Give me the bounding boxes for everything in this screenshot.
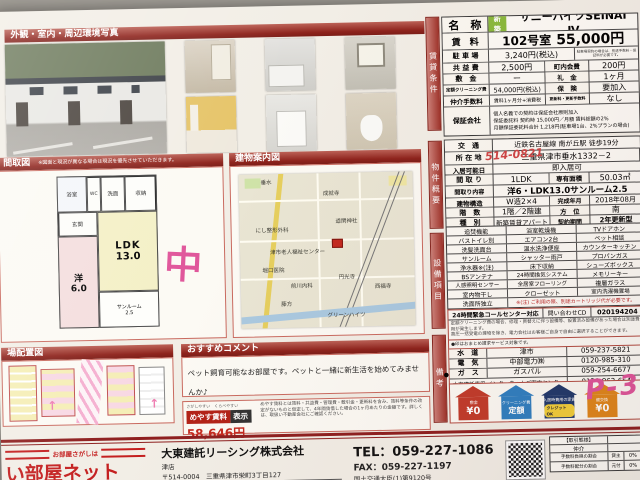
deposit-zero-badge-icon: 敷金¥0 <box>455 386 492 421</box>
plan-washroom: 洗面 <box>100 175 125 211</box>
photo-toilet <box>346 93 397 150</box>
plan-wc-label: WC <box>90 191 98 196</box>
plan-entrance-label: 玄関 <box>72 220 83 228</box>
strip-overview-label: 物件概要 <box>430 163 442 207</box>
direction: 南 <box>590 204 640 214</box>
plan-sunroom-size: 2.5 <box>125 310 133 316</box>
strip-equipment: 設備項目 <box>430 233 446 329</box>
gas-provider: ガスパル <box>488 367 568 378</box>
plan-storage: 収納 <box>124 175 157 212</box>
renewal-label: 更新料・更新手数料 <box>546 93 590 104</box>
plan-western-label: 洋 <box>74 271 83 284</box>
parking-note: 駐車場契約の場合は、別途手数料・保証料が必要です。 <box>575 46 638 59</box>
photo-toilet-bowl <box>360 115 383 141</box>
photo-exterior-windows <box>30 84 140 94</box>
renewal-fee: なし <box>590 92 639 103</box>
map-label-clinic1: にし整形外科 <box>256 226 289 235</box>
badge-top-text: 入居時費用の家賃 <box>543 397 576 403</box>
equipment-item: 追焚機能 <box>447 226 507 235</box>
equipment-item: 洗面所独立 <box>448 298 508 308</box>
house-roof-icon <box>541 384 577 396</box>
plan-bath-label: 浴室 <box>66 190 77 198</box>
fee-burden-owner-value: 0% <box>624 451 640 459</box>
deposit: ー <box>489 72 545 83</box>
photo-washroom <box>266 94 317 151</box>
key-money: 1ヶ月 <box>589 70 638 81</box>
photo-bathroom-mirror <box>190 105 199 131</box>
deal-expiry-value: 2018/10/02 <box>608 442 640 451</box>
room-number: 102号室 <box>502 31 551 49</box>
equipment-item: サンルーム <box>447 253 507 262</box>
floor-area: 50.03㎡ <box>589 171 640 182</box>
layout-detail-label: 間取り内容 <box>446 186 494 198</box>
insurance: 要加入 <box>590 81 639 92</box>
plan-wc: WC <box>86 176 101 212</box>
qr-code <box>506 441 545 480</box>
town-fee: 200円 <box>589 59 638 70</box>
deal-type-header: 【取引態様】 <box>550 436 608 444</box>
map-label-fujikata: 藤方 <box>281 300 292 308</box>
equipment-item: シャッター雨戸 <box>507 252 577 261</box>
site-units-cluster <box>106 365 135 416</box>
map-park-patch <box>245 178 261 188</box>
plan-bath: 浴室 <box>56 176 87 213</box>
fee-split-listing-label: 元付 <box>609 461 625 470</box>
equipment-item: エアコン2台 <box>507 234 577 243</box>
new-construction-badge: 新築 <box>488 13 506 31</box>
floor: 1階／2階建 <box>494 206 550 216</box>
electric-provider: 中部電力㈱ <box>487 357 567 368</box>
deal-type-value: 仲介 <box>550 444 608 452</box>
floor-label: 階 数 <box>446 208 494 218</box>
floorplan-title: 間取図 <box>3 157 30 171</box>
photo-living-window <box>211 44 232 80</box>
guarantor-line3: 月額保証委託料合計 1,218円(駐車場1台、2%プランの場合) <box>493 121 629 131</box>
logo-main-text: い部屋ネット <box>5 457 146 480</box>
plan-sunroom: サンルーム 2.5 <box>99 291 160 328</box>
photo-exterior-roofline <box>5 75 165 84</box>
photo-exterior-door <box>68 101 80 125</box>
layout-type: 1LDK <box>494 173 550 184</box>
site-layout-box: ↑ ↑ <box>1 357 174 427</box>
equipment-item: 全居室フローリング <box>508 279 578 288</box>
meyasu-badge: めやす賃料 <box>186 410 230 424</box>
area-label: 専有面積 <box>550 173 590 184</box>
water-provider: 津市 <box>487 347 567 358</box>
deal-expiry-header: 【取引条件有効期限】 <box>608 434 640 443</box>
strip-remarks: 備考 <box>432 335 448 423</box>
map-label-welfare-center: 津市老人福祉センター <box>270 247 325 256</box>
equipment-item: 24時間換気システム <box>508 270 578 279</box>
map-label-shrine: 道閑神社 <box>335 216 357 224</box>
brokerage-fee: 賃料1ヶ月分+消費税 <box>490 94 546 105</box>
completion-date: 2018年08月 <box>590 194 640 204</box>
inquiry-cd-number: 020194204 <box>591 306 640 316</box>
strip-equipment-label: 設備項目 <box>432 259 444 303</box>
equipment-item: 室内洗濯機置場 <box>578 286 640 295</box>
equipment-item: 洗髪洗面台 <box>447 244 507 253</box>
map-title: 建物案内図 <box>235 152 280 166</box>
structure: W造2×4 <box>494 196 550 206</box>
map-canvas: 垂水 成就寺 道閑神社 にし整形外科 津市老人福祉センター 堀口医院 前川内科 … <box>238 171 415 329</box>
rent-amount: 55,000円 <box>556 29 624 48</box>
map-label-temple2: 西福寺 <box>375 282 392 290</box>
site-road-hatch <box>76 359 103 425</box>
map-label-temple1: 円光寺 <box>339 272 356 280</box>
map-label-clinic2: 堀口医院 <box>262 266 284 274</box>
equipment-item: プロパンガス <box>577 250 640 259</box>
equipment-item: カウンターキッチン <box>577 241 640 250</box>
flyer-paper: 外観・室内・周辺環境写真 賃貸条件 物件概要 設備項目 備考 名 称 新築 <box>0 0 640 480</box>
fee-split-listing-value: 0% <box>625 460 640 469</box>
direction-label: 方 位 <box>550 206 590 216</box>
meyasu-box: さがしやすい くらべやすい めやす賃料 表示 58,646円 めやす賃料とは賃料… <box>182 396 431 435</box>
logo-stripe-icon <box>101 447 145 457</box>
electric-label: 電 気 <box>449 359 487 369</box>
comment-text: ペット飼育可能なお部屋です。ペットと一緒に新生活を始めてみませんか♪ <box>188 364 420 397</box>
photo-exterior-door <box>120 100 132 124</box>
deposit-label: 敷 金 <box>443 74 489 85</box>
equipment-item: 浄水器※(注) <box>447 262 507 271</box>
meyasu-view-badge: 表示 <box>230 410 251 423</box>
equipment-item: クローゼット <box>508 288 578 297</box>
strip-property-overview: 物件概要 <box>428 141 444 229</box>
structure-label: 建物構造 <box>446 198 494 208</box>
credit-ok-badge-icon: 入居時費用の家賃クレジットOK <box>541 384 578 419</box>
cleaning-label: 定額クリーニング費 <box>444 85 490 96</box>
equipment-item: バストイレ別 <box>447 235 507 244</box>
water-tel: 059-237-5821 <box>567 345 640 356</box>
fee-burden-owner-label: 貸主 <box>608 452 624 460</box>
company-block: 大東建託リーシング株式会社 津店 〒514-0004 三重県津市栄町3丁目127… <box>161 442 342 480</box>
photo-living-room <box>185 40 236 93</box>
badge-bottom-text: ¥0 <box>595 404 609 414</box>
badge-bottom-text: 定額 <box>508 407 524 415</box>
meyasu-tag2: くらべやすい <box>214 403 238 410</box>
plan-western-room: 洋 6.0 <box>58 236 100 329</box>
plan-ldk-label: LDK <box>115 240 141 252</box>
gas-label: ガ ス <box>450 369 488 379</box>
site-layout-title: 場配置図 <box>7 347 43 361</box>
logo-stripe-icon <box>5 449 49 459</box>
movein-label: 入居可能日 <box>445 165 493 175</box>
equipment-item: ペット相談 <box>577 232 640 241</box>
common-fee: 2,500円 <box>489 61 545 72</box>
house-roof-icon <box>498 385 534 397</box>
map-road <box>241 275 415 281</box>
photo-bathroom <box>186 96 237 153</box>
site-units-cluster <box>40 368 75 417</box>
photo-kitchen <box>265 38 316 91</box>
site-units-cluster <box>8 365 37 422</box>
key-money-label: 礼 金 <box>545 72 589 83</box>
floorplan-box: 浴室 WC 洗面 収納 玄関 LDK 13.0 サンルーム 2.5 洋 6.0 … <box>0 166 227 343</box>
cleaning-fee: 54,000円(税込) <box>490 83 546 94</box>
property-overview-table: 交 通 近鉄名古屋線 南が丘駅 徒歩19分 所 在 地 三重県津市垂水1332－… <box>444 135 640 229</box>
handwritten-naka-mark: 中 <box>163 233 204 290</box>
map-box: 垂水 成就寺 道閑神社 にし整形外科 津市老人福祉センター 堀口医院 前川内科 … <box>229 162 425 338</box>
rental-conditions-table: 名 称 新築 サニーハイツSEINAI Ⅳ 賃 料 102号室 55,000円 … <box>441 12 640 136</box>
badge-bottom-text: クレジットOK <box>544 403 574 417</box>
parking-fee: 3,240円(税込) <box>489 48 575 62</box>
town-fee-label: 町内会費 <box>545 61 589 72</box>
map-label-joujuji: 成就寺 <box>323 189 340 197</box>
contact-block: TEL：059-227-1086 FAX：059-227-1197 国土交通大臣… <box>353 438 504 480</box>
inquiry-cd-label: 問い合わせCD <box>543 308 591 318</box>
gas-bundle-mark: ● <box>444 371 449 378</box>
map-road <box>240 237 414 243</box>
map-property-marker <box>332 239 343 248</box>
deal-terms-table: 【取引態様】 【取引条件有効期限】 仲介 2018/10/02 手数料負担の割合… <box>549 433 640 473</box>
rent-label: 賃 料 <box>443 33 489 50</box>
house-roof-icon <box>455 386 491 398</box>
photo-bedroom <box>345 37 396 90</box>
plan-entrance: 玄関 <box>57 212 97 237</box>
meyasu-tag1: さがしやすい <box>186 404 210 411</box>
electric-tel: 0120-985-310 <box>567 355 640 366</box>
fee-split-label: 手数料配分の割合 <box>551 461 609 471</box>
equipment-item: BSアンテナ <box>448 271 508 280</box>
guarantor-label: 保証会社 <box>444 107 491 136</box>
badge-top-text: 敷金 <box>469 400 477 406</box>
equipment-item: 浴室乾燥機 <box>507 225 577 234</box>
photo-exterior-door <box>16 103 28 127</box>
equipment-item: 床下収納 <box>507 261 577 270</box>
meyasu-note: めやす賃料とは賃料・共益費・管理費・敷引金・更新料を含み、賃料等条件の改定がない… <box>257 397 430 433</box>
equipment-table: 追焚機能浴室乾燥機TVドアホン バストイレ別エアコン2台ペット相談 洗髪洗面台温… <box>446 222 640 309</box>
cleaning-flat-badge-icon: クリーニング費定額 <box>498 385 535 420</box>
floorplan-canvas: 浴室 WC 洗面 収納 玄関 LDK 13.0 サンルーム 2.5 洋 6.0 … <box>4 171 219 337</box>
comment-box: ペット飼育可能なお部屋です。ペットと一緒に新生活を始めてみませんか♪ <box>181 352 430 397</box>
completion-label: 完成年月 <box>550 196 590 206</box>
photo-section-title: 外観・室内・周辺環境写真 <box>10 27 118 42</box>
equipment-item: 人感照明センサー <box>448 280 508 289</box>
photo-exterior-parking-line <box>13 142 73 155</box>
photo-exterior <box>5 41 167 156</box>
strip-rental-conditions: 賃貸条件 <box>425 17 441 131</box>
equipment-item: メモリーキー <box>578 268 640 277</box>
tel-number: TEL：059-227-1086 <box>353 438 503 460</box>
photo-bedroom-window <box>357 43 385 68</box>
badge-bottom-text: ¥0 <box>466 407 480 417</box>
plan-washroom-label: 洗面 <box>107 189 118 197</box>
water-label: 水 道 <box>449 349 487 359</box>
iiheyanet-logo: お部屋さがしは い部屋ネット <box>5 447 146 480</box>
plan-western-size: 6.0 <box>71 284 87 294</box>
fee-burden-label: 手数料負担の割合 <box>550 452 608 461</box>
site-arrow-icon: ↑ <box>149 397 159 411</box>
plan-storage-label: 収納 <box>135 189 146 197</box>
parking-label: 駐 車 場 <box>443 50 489 63</box>
map-label-clinic3: 前川内科 <box>291 281 313 289</box>
map-road <box>358 172 363 326</box>
plan-ldk-size: 13.0 <box>116 251 141 263</box>
insurance-label: 保 険 <box>546 83 590 94</box>
badge-top-text: クリーニング費 <box>502 400 530 406</box>
layout-label: 間 取 り <box>446 175 494 186</box>
equipment-item: 温水洗浄便座 <box>507 243 577 252</box>
site-arrow-icon: ↑ <box>47 399 57 413</box>
photo-washing-machine <box>276 110 307 147</box>
plan-ldk: LDK 13.0 <box>97 211 159 292</box>
photo-exterior-parking-line <box>93 137 153 150</box>
photo-kitchen-counter <box>268 64 304 87</box>
brokerage-label: 仲介手数料 <box>444 96 490 107</box>
map-label-tarumi: 垂水 <box>261 178 272 186</box>
name-label: 名 称 <box>442 17 488 33</box>
equipment-item: TVドアホン <box>577 223 640 232</box>
common-fee-label: 共 益 費 <box>443 63 489 74</box>
map-label-greenheights: グリーンハイツ <box>327 310 365 319</box>
strip-rental-label: 賃貸条件 <box>427 52 439 96</box>
equipment-item: シューズボックス <box>577 259 640 268</box>
photo-background: 外観・室内・周辺環境写真 賃貸条件 物件概要 設備項目 備考 名 称 新築 <box>0 0 640 480</box>
equipment-item: 室内物干し <box>448 289 508 298</box>
equipment-item: 複層ガラス <box>578 277 640 286</box>
